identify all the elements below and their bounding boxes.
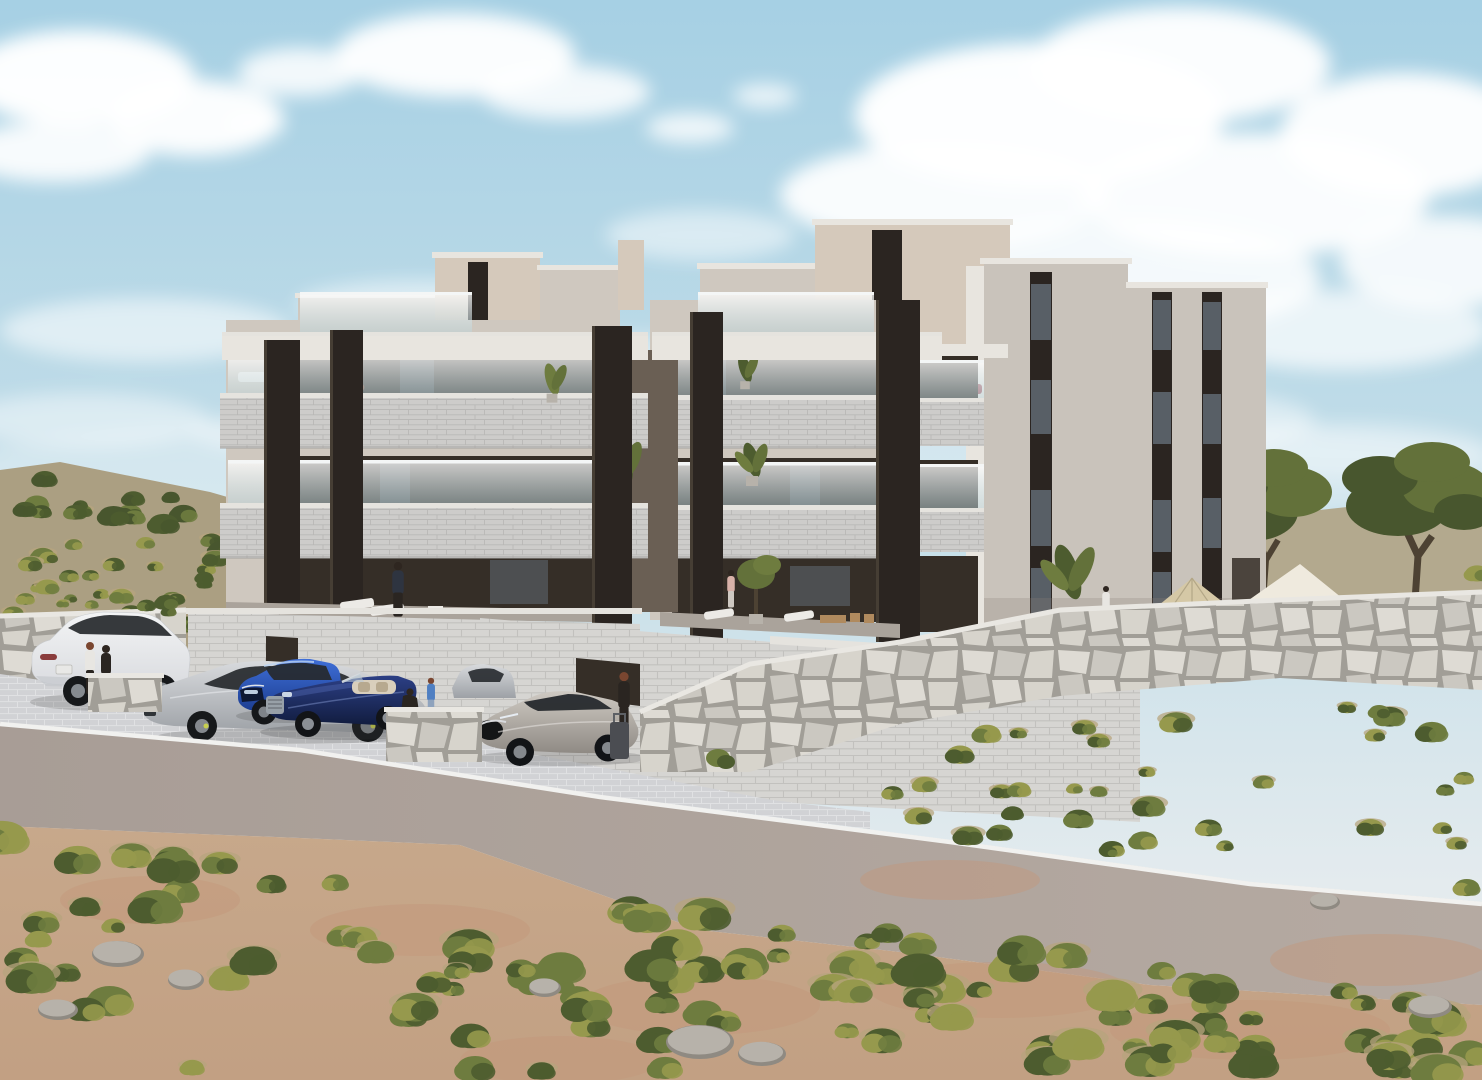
bush — [1262, 779, 1275, 788]
bush — [845, 1027, 859, 1038]
bush — [226, 973, 250, 991]
rock — [668, 1026, 731, 1055]
scene-canvas — [0, 0, 1482, 1080]
bush — [1017, 944, 1046, 965]
bush — [1385, 1050, 1411, 1069]
bush — [518, 964, 536, 977]
bush — [556, 961, 586, 983]
bush — [72, 542, 82, 550]
cloud — [225, 114, 285, 136]
suitcase — [610, 722, 629, 759]
bush — [721, 1017, 742, 1032]
bush — [1145, 770, 1155, 777]
bush — [63, 969, 81, 982]
bush — [216, 858, 237, 874]
bush — [884, 929, 903, 943]
bush — [372, 947, 394, 963]
bush — [62, 602, 70, 608]
bush — [36, 935, 52, 947]
bush — [24, 596, 35, 604]
bush — [1017, 786, 1031, 797]
rock — [739, 1042, 783, 1062]
bush — [1219, 1037, 1241, 1053]
bush — [1444, 788, 1455, 796]
sand-patch — [1270, 934, 1482, 986]
bush — [110, 512, 129, 526]
bush — [916, 812, 932, 824]
bush — [38, 917, 60, 933]
bush — [105, 994, 134, 1015]
balcony-slab — [650, 400, 906, 448]
bush — [779, 930, 796, 942]
facade-window-strip — [1030, 272, 1052, 636]
bush — [73, 509, 87, 519]
cloud — [733, 84, 797, 108]
rock — [168, 970, 201, 987]
bush — [164, 599, 178, 609]
bush — [1210, 982, 1239, 1004]
bush — [1167, 1045, 1192, 1063]
bush — [119, 593, 134, 604]
bush — [1076, 815, 1094, 828]
bush — [659, 998, 679, 1013]
bush — [144, 540, 155, 548]
bush — [1342, 987, 1358, 999]
architectural-render — [0, 0, 1482, 1080]
bush — [1462, 775, 1474, 784]
rock — [39, 1000, 76, 1017]
bush — [160, 519, 179, 533]
bush — [411, 1001, 439, 1021]
side-facade-block — [966, 258, 1268, 648]
bush — [1441, 826, 1452, 834]
bush — [1082, 724, 1096, 734]
bush — [45, 584, 59, 595]
bush — [977, 986, 992, 997]
bush — [1063, 950, 1088, 968]
bush — [167, 609, 177, 616]
bush — [69, 597, 77, 603]
bush — [128, 850, 152, 868]
bush — [190, 1064, 205, 1075]
facade-window-strip — [1202, 292, 1222, 610]
bush — [150, 899, 183, 923]
bush — [1010, 810, 1024, 820]
bush — [1223, 843, 1233, 851]
bush — [1146, 802, 1166, 816]
bush — [202, 575, 213, 583]
bush — [1074, 1037, 1105, 1060]
bush — [1345, 705, 1356, 713]
bush — [742, 964, 763, 980]
bush — [957, 751, 975, 764]
bush — [1140, 837, 1157, 850]
bush — [916, 994, 935, 1008]
bush — [28, 561, 42, 571]
bush — [82, 903, 100, 916]
bush — [27, 971, 57, 993]
bush — [878, 1035, 902, 1053]
rock — [1310, 893, 1338, 907]
bush — [112, 561, 125, 570]
bush — [849, 958, 877, 978]
bush — [647, 958, 679, 981]
bush — [269, 880, 287, 893]
bush — [965, 832, 983, 845]
bush — [471, 1063, 495, 1080]
bush — [582, 1000, 612, 1022]
bush — [1149, 999, 1169, 1013]
bush — [1464, 884, 1480, 896]
bush — [42, 475, 58, 486]
bush — [47, 555, 58, 563]
bush — [177, 886, 200, 903]
bush — [662, 1063, 683, 1079]
bush — [169, 495, 180, 503]
cloud — [480, 65, 650, 119]
bush — [1173, 718, 1193, 732]
bush — [922, 781, 937, 792]
bush — [73, 854, 101, 874]
bush — [333, 879, 349, 891]
bush — [467, 1030, 491, 1047]
bush — [154, 564, 164, 571]
bush — [1017, 731, 1027, 739]
bush — [776, 952, 790, 962]
bush — [91, 603, 99, 609]
bush — [132, 514, 146, 524]
rock — [529, 978, 558, 993]
bush — [914, 963, 947, 987]
bush — [997, 829, 1013, 841]
bush — [1455, 841, 1467, 850]
bush — [39, 509, 52, 518]
bush — [948, 1011, 974, 1030]
bush — [672, 938, 702, 960]
rock — [1409, 996, 1449, 1015]
facade-window-strip — [1152, 292, 1172, 616]
bush — [1361, 999, 1376, 1010]
sand-patch — [860, 860, 1040, 900]
bush — [1377, 709, 1390, 719]
bush — [1108, 988, 1139, 1011]
bush — [1206, 824, 1222, 836]
bush — [169, 860, 200, 883]
bush — [89, 573, 99, 580]
bush — [451, 986, 465, 996]
bush — [1112, 1011, 1132, 1025]
bush — [67, 573, 79, 582]
balcony-slab — [650, 510, 906, 558]
bush — [1429, 728, 1449, 742]
bush — [1159, 967, 1176, 979]
bush — [131, 495, 145, 505]
bush — [455, 967, 470, 978]
bush — [850, 986, 873, 1003]
bush — [1108, 850, 1118, 857]
bush — [181, 510, 198, 522]
bush — [1073, 786, 1083, 793]
bush — [700, 907, 732, 930]
bush — [1249, 1056, 1279, 1078]
bush — [1249, 1015, 1263, 1025]
cloud — [1030, 7, 1330, 123]
bush — [431, 977, 452, 992]
cloud — [646, 113, 734, 143]
bush — [111, 923, 125, 933]
bush — [643, 912, 671, 933]
bush — [539, 1067, 556, 1079]
bush — [83, 1004, 106, 1021]
bush — [1368, 824, 1384, 836]
bush — [914, 939, 936, 955]
bush — [1373, 733, 1385, 742]
rock — [93, 941, 141, 963]
bush — [1097, 738, 1110, 748]
bush — [249, 954, 277, 975]
bush — [984, 730, 1002, 743]
unit-gap-shadow — [630, 350, 678, 612]
bush — [23, 506, 38, 517]
bush — [1097, 789, 1107, 797]
bush — [891, 790, 904, 800]
